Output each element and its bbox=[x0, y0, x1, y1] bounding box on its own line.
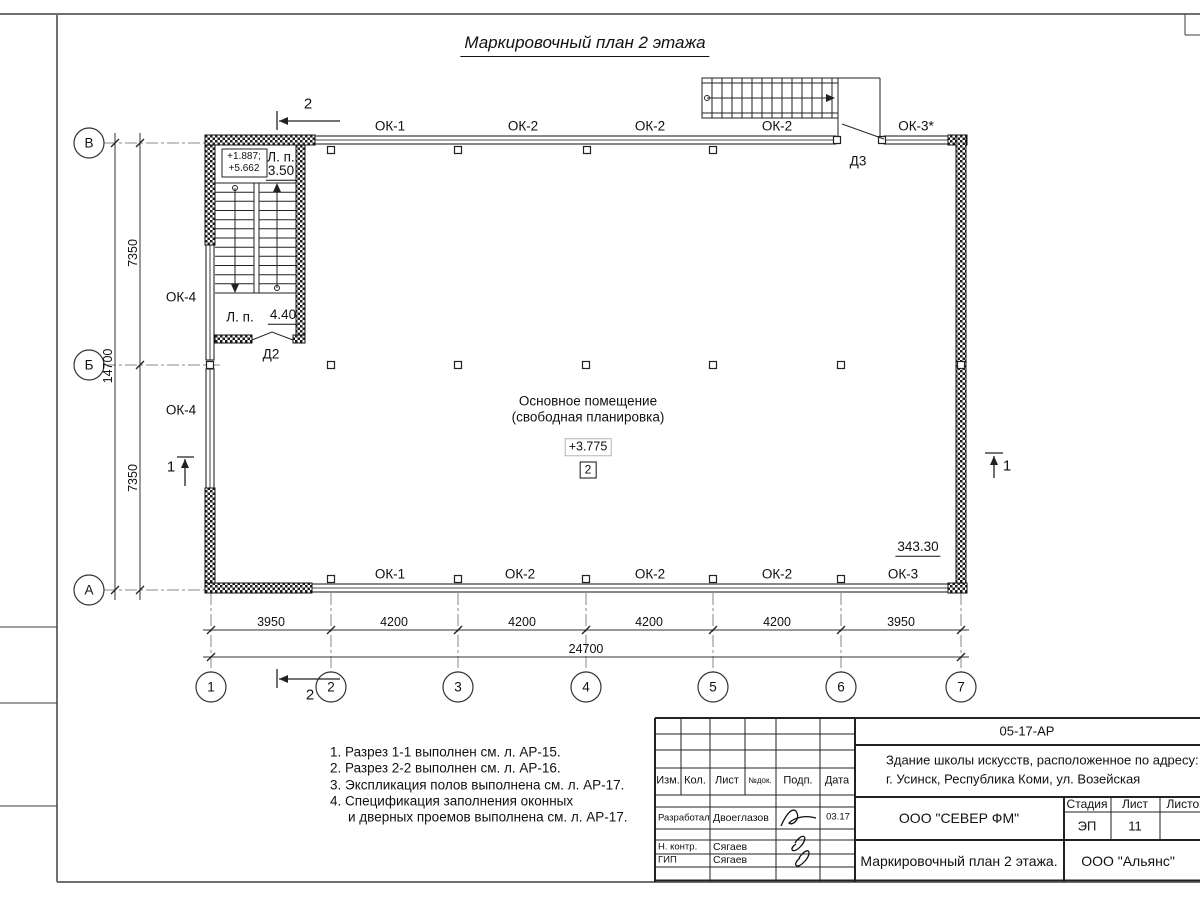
window-mark: ОК-3 bbox=[888, 567, 918, 581]
drawing-title: Маркировочный план 2 этажа bbox=[460, 33, 709, 57]
signature-marks bbox=[781, 810, 816, 866]
tb-date-developed: 03.17 bbox=[826, 812, 850, 822]
grid-bubble: 5 bbox=[709, 680, 717, 694]
tb-drawing-title: Маркировочный план 2 этажа. bbox=[860, 854, 1057, 868]
section-mark: 1 bbox=[167, 460, 175, 475]
dimension: 3950 bbox=[257, 616, 285, 629]
grid-bubble: В bbox=[84, 136, 93, 150]
section-mark: 1 bbox=[1003, 459, 1011, 474]
tb-role-gip: ГИП bbox=[658, 855, 677, 865]
dimension-total: 24700 bbox=[569, 643, 604, 656]
floor-level: +3.775 bbox=[565, 438, 612, 456]
tb-role-ncontr: Н. контр. bbox=[658, 842, 697, 852]
tb-col-izm: Изм. bbox=[656, 776, 680, 787]
landing-label: Л. п. bbox=[226, 310, 253, 324]
note-line: и дверных проемов выполнена см. л. АР-17… bbox=[348, 810, 628, 824]
window-mark: ОК-2 bbox=[508, 119, 538, 133]
room-number: 2 bbox=[580, 462, 597, 479]
stair-level: +5.662 bbox=[229, 164, 260, 174]
section-mark: 2 bbox=[304, 97, 312, 112]
window-mark: ОК-2 bbox=[635, 119, 665, 133]
external-stair bbox=[702, 78, 884, 139]
grid-bubble: 1 bbox=[207, 680, 215, 694]
window-mark: ОК-4 bbox=[166, 290, 196, 304]
grid-bubble: 2 bbox=[327, 680, 335, 694]
dimension: 3950 bbox=[887, 616, 915, 629]
window-mark: ОК-1 bbox=[375, 567, 405, 581]
dimension: 7350 bbox=[127, 464, 140, 492]
tb-sheet-value: 11 bbox=[1128, 820, 1142, 833]
window-mark: ОК-2 bbox=[635, 567, 665, 581]
dimension: 7350 bbox=[127, 239, 140, 267]
landing-area: 3.50 bbox=[266, 164, 296, 181]
titleblock-code: 05-17-АР bbox=[1000, 725, 1055, 738]
tb-name-gip: Сягаев bbox=[713, 855, 747, 866]
room-area: 343.30 bbox=[895, 540, 940, 557]
dimension-total: 14700 bbox=[102, 349, 115, 384]
tb-col-podp: Подп. bbox=[783, 776, 812, 787]
tb-sheet-label: Лист bbox=[1122, 798, 1148, 810]
tb-col-kol: Кол. bbox=[684, 776, 706, 787]
tb-role-developed: Разработал bbox=[658, 813, 710, 823]
tb-stage-value: ЭП bbox=[1078, 820, 1097, 833]
window-mark: ОК-2 bbox=[762, 567, 792, 581]
grid-bubble: 4 bbox=[582, 680, 590, 694]
note-line: 3. Экспликация полов выполнена см. л. АР… bbox=[330, 778, 624, 792]
door-mark: Д2 bbox=[263, 347, 280, 361]
titleblock-object-line2: г. Усинск, Республика Коми, ул. Возейска… bbox=[886, 773, 1140, 786]
window-mark: ОК-2 bbox=[762, 119, 792, 133]
room-name-sub: (свободная планировка) bbox=[512, 410, 665, 424]
tb-stage-label: Стадия bbox=[1067, 798, 1108, 810]
dimension: 4200 bbox=[380, 616, 408, 629]
drawing-sheet: Маркировочный план 2 этажа Основное поме… bbox=[0, 0, 1200, 900]
tb-col-ndok: №док. bbox=[748, 777, 771, 785]
column-markers bbox=[207, 137, 965, 583]
section-mark: 2 bbox=[306, 688, 314, 703]
tb-org1: ООО "СЕВЕР ФМ" bbox=[899, 811, 1019, 825]
grid-bubble: А bbox=[84, 583, 93, 597]
note-line: 4. Спецификация заполнения оконных bbox=[330, 794, 573, 808]
dimension: 4200 bbox=[763, 616, 791, 629]
stair-level: +1.887; bbox=[227, 152, 261, 162]
grid-bubble: Б bbox=[85, 358, 94, 372]
note-line: 2. Разрез 2-2 выполнен см. л. АР-16. bbox=[330, 761, 561, 775]
landing-area: 4.40 bbox=[268, 308, 298, 325]
dimension: 4200 bbox=[635, 616, 663, 629]
window-strips bbox=[206, 136, 948, 592]
note-line: 1. Разрез 1-1 выполнен см. л. АР-15. bbox=[330, 745, 561, 759]
door-mark: Д3 bbox=[850, 154, 867, 168]
tb-col-list: Лист bbox=[715, 776, 739, 787]
grid-bubble: 6 bbox=[837, 680, 845, 694]
landing-label: Л. п. bbox=[267, 150, 294, 164]
window-mark: ОК-4 bbox=[166, 403, 196, 417]
window-mark: ОК-1 bbox=[375, 119, 405, 133]
grid-bubble: 3 bbox=[454, 680, 462, 694]
tb-sheets-label: Листов bbox=[1167, 798, 1200, 810]
tb-org2: ООО "Альянс" bbox=[1081, 854, 1175, 868]
room-name: Основное помещение bbox=[519, 394, 657, 408]
dimension: 4200 bbox=[508, 616, 536, 629]
tb-col-data: Дата bbox=[825, 776, 849, 787]
tb-name-ncontr: Сягаев bbox=[713, 842, 747, 853]
window-mark: ОК-3* bbox=[898, 119, 934, 133]
titleblock-object-line1: Здание школы искусств, расположенное по … bbox=[886, 754, 1199, 767]
window-mark: ОК-2 bbox=[505, 567, 535, 581]
tb-name-developed: Двоеглазов bbox=[713, 813, 769, 824]
grid-bubble: 7 bbox=[957, 680, 965, 694]
